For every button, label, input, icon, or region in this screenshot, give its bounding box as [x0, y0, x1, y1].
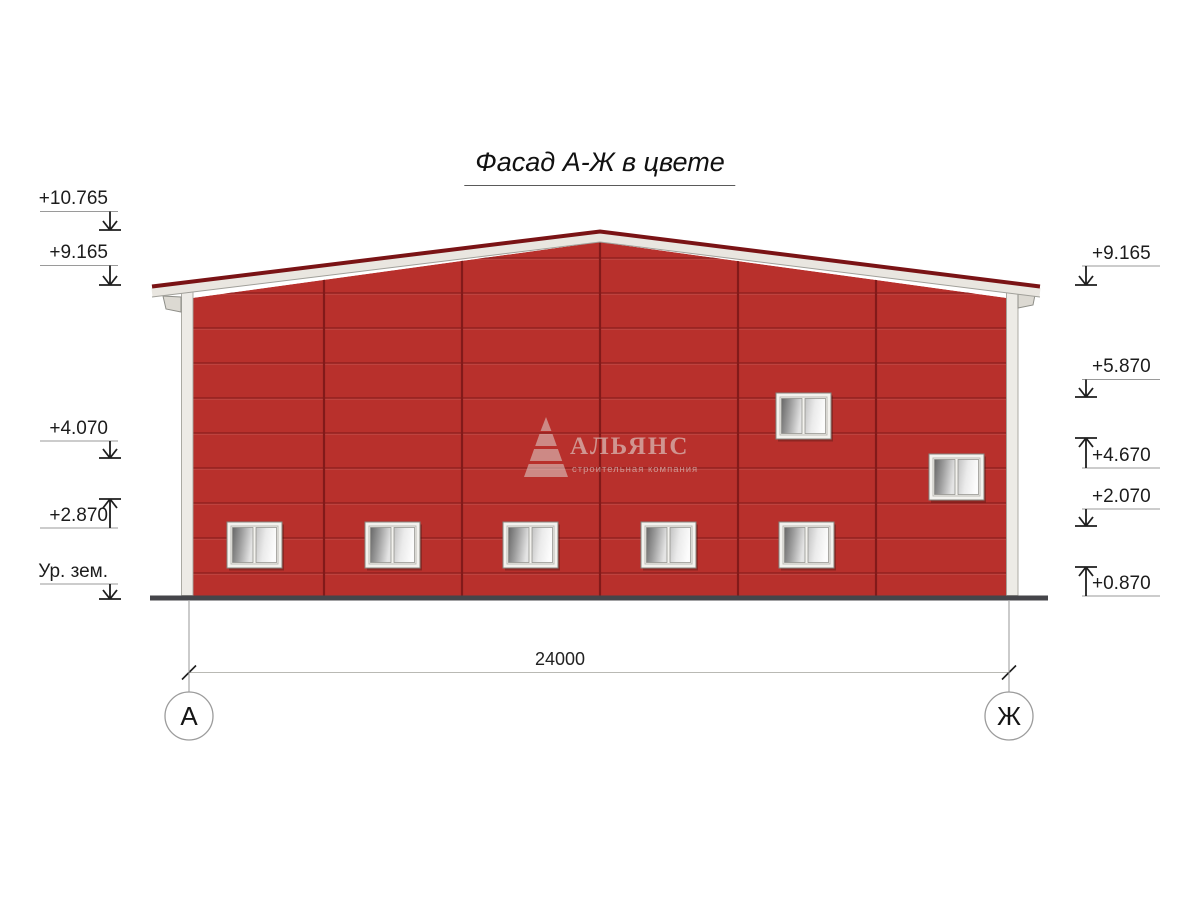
- level-label-right-0-870: +0.870: [1092, 574, 1182, 594]
- corner-trim-right: [1007, 292, 1019, 596]
- gutter-left: [163, 296, 181, 312]
- window-bay2-bottom: [365, 522, 422, 571]
- level-label-left-10-765: +10.765: [28, 189, 108, 209]
- level-label-ground: Ур. зем.: [28, 562, 108, 582]
- logo-company-name: АЛЬЯНС: [570, 433, 689, 461]
- window-bay1-bottom: [227, 522, 284, 571]
- drawing-title: Фасад А-Ж в цвете: [464, 147, 735, 186]
- level-label-right-2-070: +2.070: [1092, 487, 1182, 507]
- level-label-left-4-070: +4.070: [28, 419, 108, 439]
- axis-letter-right: Ж: [985, 692, 1033, 740]
- logo-company-tagline: строительная компания: [572, 464, 698, 475]
- level-arrows-left: [99, 212, 121, 600]
- level-label-right-9-165: +9.165: [1092, 244, 1182, 264]
- axis-stem-lines: [189, 601, 1009, 692]
- window-bay5-bottom: [779, 522, 836, 571]
- corner-trim-left: [182, 292, 194, 596]
- level-arrows-right: [1075, 266, 1097, 596]
- facade-wall: [192, 230, 1007, 596]
- level-label-left-2-870: +2.870: [28, 506, 108, 526]
- level-label-right-4-670: +4.670: [1092, 446, 1182, 466]
- level-label-right-5-870: +5.870: [1092, 357, 1182, 377]
- dimension-value: 24000: [520, 649, 600, 670]
- window-bay4-bottom: [641, 522, 698, 571]
- window-bay6-upper: [929, 454, 986, 503]
- level-label-left-9-165: +9.165: [28, 243, 108, 263]
- ground-line: [150, 596, 1048, 601]
- window-bay3-bottom: [503, 522, 560, 571]
- axis-letter-left: А: [165, 692, 213, 740]
- window-bay5-upper: [776, 393, 833, 442]
